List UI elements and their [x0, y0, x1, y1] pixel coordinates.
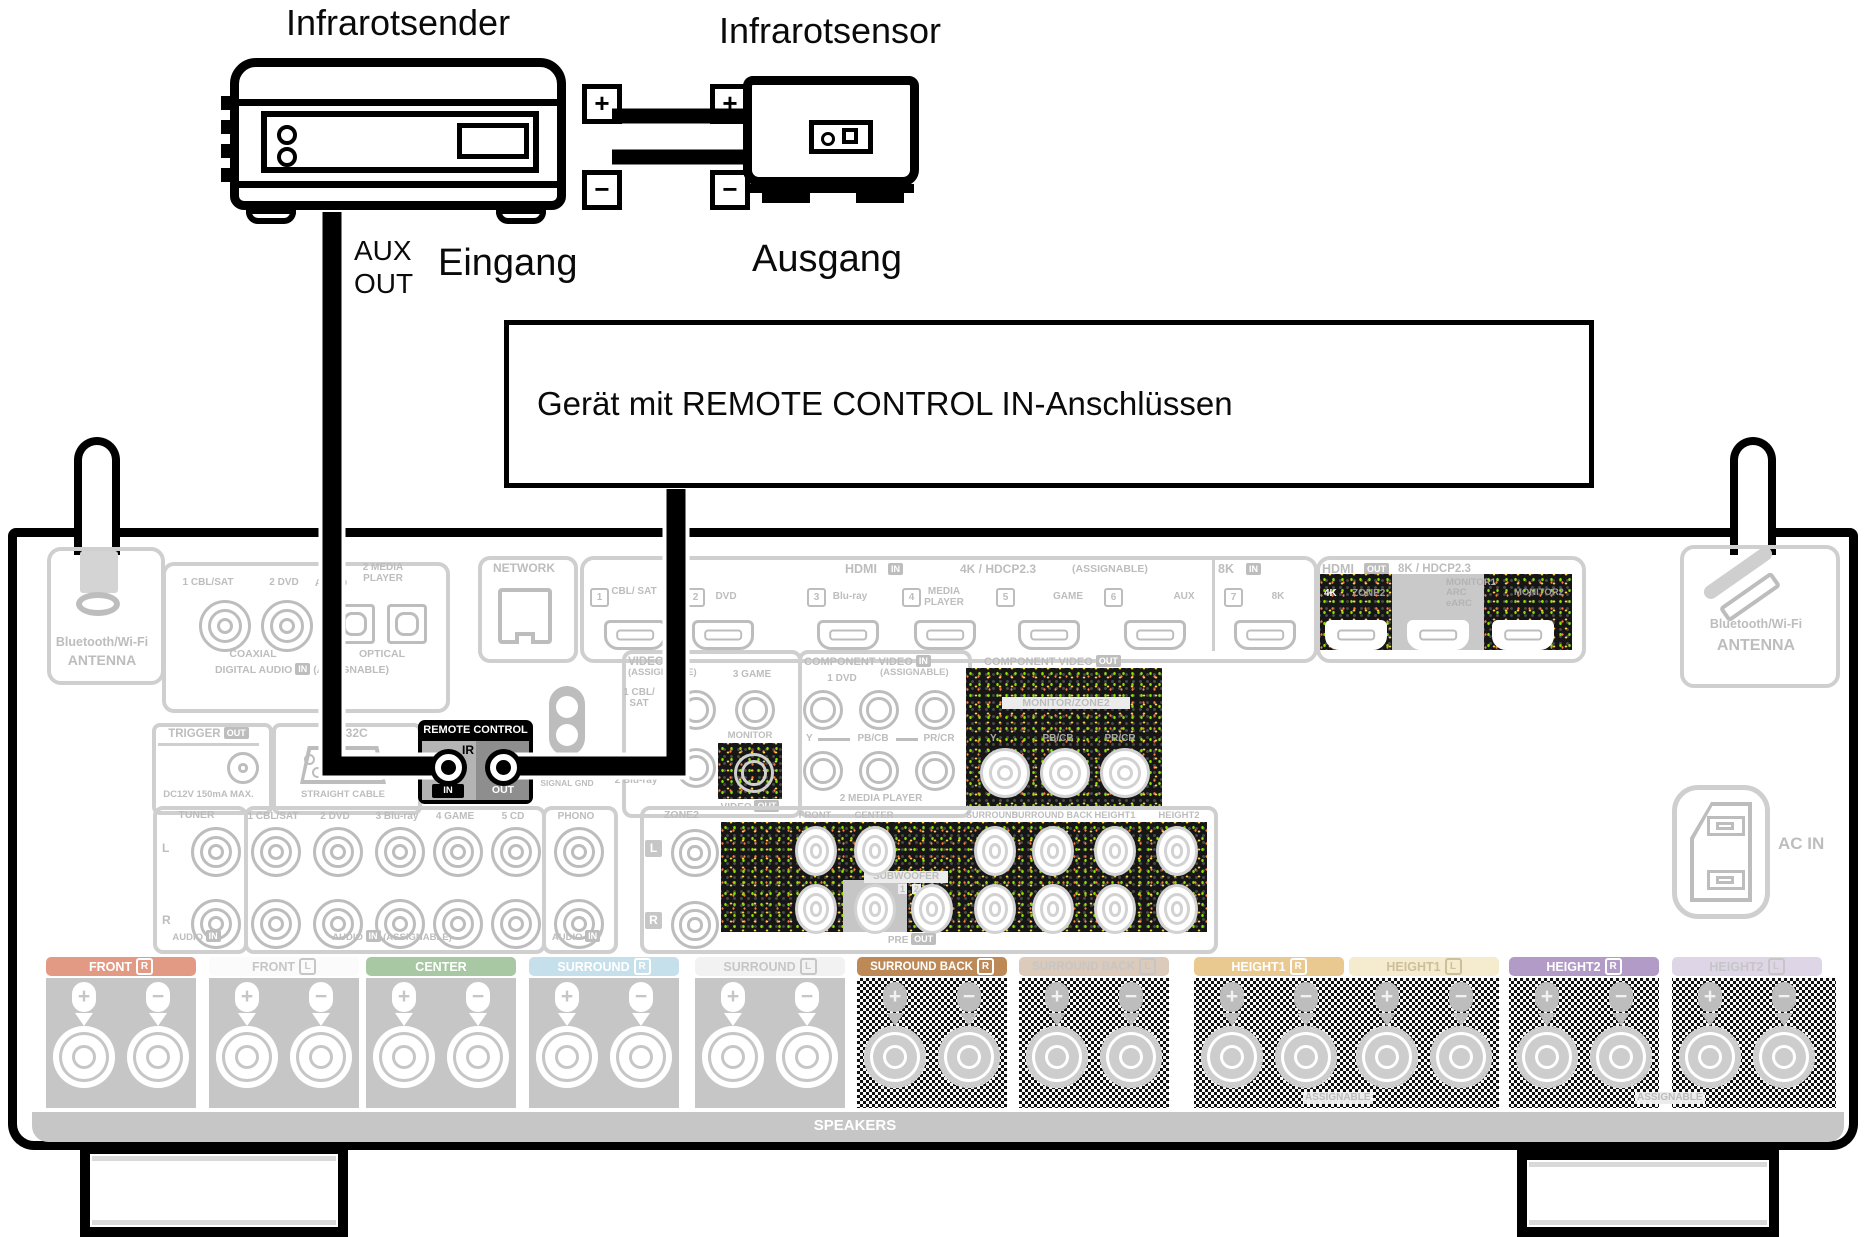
audio-jack-l [491, 827, 541, 877]
phono-jack-l [554, 827, 604, 877]
preout-surroundback-label: SURROUND BACK [1012, 811, 1092, 821]
component-rule [818, 738, 850, 741]
sensor-window [842, 128, 858, 144]
hdmi-connector-6 [1124, 620, 1186, 650]
hdmi-connector-7 [1234, 620, 1296, 650]
tab-label: CENTER [415, 960, 466, 974]
component-in-jack [915, 690, 955, 730]
hdmi-out-monitor1-label: MONITOR1 ARC eARC [1446, 578, 1496, 609]
tab-label: HEIGHT2 [1709, 960, 1763, 974]
wifi-antenna-right [1730, 437, 1776, 555]
phono-bar: AUDIO IN [538, 930, 614, 943]
component-in-assignable: (ASSIGNABLE) [880, 668, 949, 678]
audio-in-bar: AUDIO IN (ASSIGNABLE) [282, 930, 502, 943]
coaxial-jack-cblsat [199, 600, 251, 652]
signal-gnd-label: SIGNAL GND [517, 779, 617, 788]
remote-control-header: REMOTE CONTROL [418, 724, 533, 736]
binding-post-minus: − [775, 982, 839, 1108]
audio-jack-l [433, 827, 483, 877]
preout-front-label: FRONT [792, 811, 838, 821]
binding-post-minus: − [609, 982, 673, 1108]
speakers-bar: SPEAKERS [32, 1112, 1844, 1142]
sensor-eye-panel [809, 120, 873, 154]
assignable-chip: ASSIGNABLE [1635, 1092, 1705, 1104]
component-in-jack [915, 751, 955, 791]
tuner-r-label: R [162, 914, 171, 927]
foot-line [1529, 1162, 1767, 1167]
audio-jack-label: 4 GAME [423, 811, 487, 822]
digital-jack-label: 1 CBL/SAT [176, 577, 240, 588]
db9-pins-row1 [300, 754, 386, 765]
hdmi-connector-4 [914, 620, 976, 650]
sender-front-panel [261, 111, 539, 173]
digital-jack-label: 2 DVD [260, 577, 308, 588]
preout-jack-height1 [1094, 826, 1136, 876]
component-rule [896, 738, 918, 741]
hdmi-port-number: 2 [686, 588, 705, 607]
ac-pin-slot [1716, 876, 1734, 884]
component-out-y-label: Y [990, 733, 997, 744]
ethernet-notch [515, 632, 535, 644]
tab-label: HEIGHT1 [1386, 960, 1440, 974]
binding-post-plus: + [863, 982, 927, 1108]
zone2-jack-l [671, 829, 719, 877]
eingang-label: Eingang [438, 242, 577, 285]
block-gap [1659, 978, 1672, 1108]
speaker-tab-height1-l: HEIGHT1L [1349, 957, 1499, 976]
component-in-jack [859, 690, 899, 730]
audio-jack-l [251, 827, 301, 877]
sender-minus-terminal: − [582, 170, 622, 210]
tab-badge: R [1290, 958, 1307, 975]
speaker-tab-surroundback-r: SURROUND BACKR [857, 957, 1007, 976]
block-gap [1169, 978, 1194, 1108]
tab-label: SURROUND BACK [870, 961, 973, 973]
binding-post-minus: − [1752, 982, 1816, 1108]
ground-symbol [552, 760, 582, 775]
hdmi-port-number: 5 [996, 588, 1015, 607]
binding-post-minus: − [1589, 982, 1653, 1108]
hdmi-in-badge: IN [888, 563, 903, 576]
remote-control-in-device-box: Gerät mit REMOTE CONTROL IN-Anschlüssen [504, 320, 1594, 488]
foot-line [92, 1156, 336, 1161]
trigger-jack [227, 752, 259, 784]
receiver-foot-right [1517, 1150, 1779, 1237]
ac-pin-bottom [1707, 870, 1745, 890]
tab-badge: L [800, 958, 817, 975]
zone2-jack-r [671, 901, 719, 949]
tab-label: FRONT [252, 960, 295, 974]
video-jack-label: 1 CBL/ SAT [616, 688, 662, 710]
audio-jack-l [313, 827, 363, 877]
gnd-ring [556, 724, 578, 746]
foot-line [1529, 1220, 1767, 1225]
preout-jack-surround-b [974, 884, 1016, 934]
in-badge: IN [916, 655, 931, 667]
ac-pin-slot [1716, 822, 1734, 830]
out-badge: OUT [224, 727, 249, 739]
component-in-jack [859, 751, 899, 791]
bt-left-line1: Bluetooth/Wi-Fi [49, 636, 155, 650]
tab-badge: L [1445, 958, 1462, 975]
hdmi-in-assignable: (ASSIGNABLE) [1072, 564, 1148, 576]
binding-post-minus: − [937, 982, 1001, 1108]
coaxial-jack-dvd [261, 600, 313, 652]
hdmi-port-number: 4 [902, 588, 921, 607]
db9-pins-row2 [300, 767, 386, 778]
speaker-tab-surround-l: SURROUNDL [695, 957, 845, 976]
component-in-jack [803, 751, 843, 791]
digital-audio-bar: DIGITAL AUDIO IN (ASSIGNABLE) [168, 663, 436, 677]
tab-badge: R [136, 958, 153, 975]
binding-post-plus: + [535, 982, 599, 1108]
optical-jack-mediaplayer [387, 604, 427, 644]
sender-vent [221, 144, 231, 158]
tab-label: SURROUND [557, 960, 629, 974]
binding-post-plus: + [1355, 982, 1419, 1108]
binding-post-minus: − [446, 982, 510, 1108]
hdmi-port-label: MEDIA PLAYER [920, 587, 968, 609]
hdmi-in-title: HDMI [845, 563, 877, 577]
component-out-zone-label: MONITOR/ZONE2 [1002, 697, 1130, 709]
preout-height1-label: HEIGHT1 [1090, 811, 1140, 821]
speaker-tab-height1-r: HEIGHT1R [1194, 957, 1344, 976]
sender-vent [221, 120, 231, 134]
tab-badge: L [1768, 958, 1785, 975]
ac-pin-top [1707, 816, 1745, 836]
tuner-l-label: L [162, 842, 169, 855]
bt-right-line2: ANTENNA [1682, 637, 1830, 655]
bt-left-line2: ANTENNA [49, 653, 155, 668]
video-in-jack-cblsat [676, 690, 716, 730]
hdmi-connector-3 [817, 620, 879, 650]
aux-line2: OUT [354, 267, 413, 300]
sender-led-2 [277, 147, 297, 167]
gnd-ring [556, 696, 578, 718]
preout-center-label: CENTER [848, 811, 900, 821]
binding-post-plus: + [52, 982, 116, 1108]
wifi-antenna-left [74, 437, 120, 555]
hdmi-out-connector-4k [1325, 620, 1387, 650]
speaker-tab-front-l: FRONTL [209, 957, 359, 976]
zone2-label: ZONE2 [664, 810, 699, 822]
ethernet-port [498, 588, 552, 644]
digital-jack-label: 2 MEDIA PLAYER [358, 563, 408, 585]
optical-label: OPTICAL [344, 649, 420, 661]
binding-post-plus: + [1515, 982, 1579, 1108]
preout-jack-surroundback [1032, 826, 1074, 876]
speaker-tab-surroundback-l: SURROUND BACKL [1019, 957, 1169, 976]
in-badge: IN [888, 563, 903, 575]
rs232c-header: RS-232C [276, 727, 410, 740]
assignable-chip: ASSIGNABLE [1303, 1092, 1373, 1104]
out-badge: OUT [911, 933, 936, 945]
in-badge: IN [366, 930, 381, 942]
preout-jack-sub1 [854, 884, 896, 934]
sender-foot [496, 208, 546, 224]
binding-post-plus: + [701, 982, 765, 1108]
hdmi-port-label: 8K [1256, 591, 1300, 602]
preout-jack-sub2 [911, 884, 953, 934]
tab-badge: R [1605, 958, 1622, 975]
optical-jack-tvaudio [335, 604, 375, 644]
remote-ir-out-jack [485, 749, 522, 786]
tab-label: SURROUND BACK [1032, 961, 1135, 973]
binding-post-minus: − [1429, 982, 1493, 1108]
binding-post-plus: + [1678, 982, 1742, 1108]
hdmi-port-label: AUX [1158, 591, 1210, 602]
digital-audio-title: DIGITAL AUDIO [215, 664, 292, 676]
tab-label: SURROUND [723, 960, 795, 974]
preout-jack-surroundback-b [1032, 884, 1074, 934]
block-gap [1499, 978, 1509, 1108]
binding-post-plus: + [372, 982, 436, 1108]
remote-ir-label: IR [462, 743, 474, 757]
sender-foot [246, 208, 296, 224]
hdmi-port-label: Blu-ray [826, 591, 874, 602]
out-badge: OUT [1096, 655, 1121, 667]
in-badge: IN [1246, 563, 1261, 575]
in-badge: IN [206, 930, 221, 942]
sender-plus-terminal: + [582, 84, 622, 124]
sender-led-1 [277, 125, 297, 145]
tuner-bar: AUDIO IN [157, 930, 236, 943]
hdmi-port-label: CBL/ SAT [610, 587, 658, 598]
antenna-ring-left [76, 592, 120, 616]
in-badge: IN [667, 655, 682, 667]
trigger-out-header: TRIGGER OUT [158, 727, 259, 746]
rs232c-connector [300, 746, 386, 784]
sensor-foot [856, 193, 904, 203]
tab-label: HEIGHT2 [1546, 960, 1600, 974]
trigger-note: DC12V 150mA MAX. [154, 790, 263, 800]
earc-line: eARC [1446, 599, 1496, 609]
remote-in-badge: IN [432, 784, 464, 798]
tuner-label: TUNER [157, 810, 236, 822]
hdmi-connector-2 [692, 620, 754, 650]
ac-in-label: AC IN [1778, 835, 1824, 854]
tab-badge: L [1139, 958, 1156, 975]
sender-vent [221, 168, 231, 182]
video-in-assignable: (ASSIGNABLE) [628, 668, 697, 678]
video-jack-label: 3 GAME [722, 669, 782, 680]
signal-gnd-screw [549, 686, 585, 756]
audio-jack-l [375, 827, 425, 877]
foot-line [92, 1220, 336, 1225]
hdmi-connector-1 [604, 620, 666, 650]
audio-jack-label: 5 CD [481, 811, 545, 822]
ausgang-label: Ausgang [752, 238, 902, 281]
speaker-tab-center: CENTER [366, 957, 516, 976]
ir-sender-label: Infrarotsender [230, 2, 566, 44]
component-in-jack [803, 690, 843, 730]
preout-jack-height2 [1156, 826, 1198, 876]
device-box-label: Gerät mit REMOTE CONTROL IN-Anschlüssen [509, 385, 1233, 423]
component-y-label: Y [806, 733, 813, 744]
audio-label: AUDIO [552, 932, 583, 943]
hdmi-out-connector-monitor2 [1492, 620, 1554, 650]
bt-right-line1: Bluetooth/Wi-Fi [1682, 618, 1830, 632]
hdmi-connector-5 [1018, 620, 1080, 650]
hdmi-out-connector-monitor1 [1407, 620, 1469, 650]
ir-sender-device [230, 58, 566, 210]
component-out-jack [1040, 748, 1090, 798]
speaker-tab-front-r: FRONTR [46, 957, 196, 976]
binding-post-minus: − [126, 982, 190, 1108]
hdmi-out-monitor2-label: MONITOR2 [1514, 588, 1564, 598]
video-out-monitor-label: MONITOR [718, 731, 782, 741]
aux-out-label: AUX OUT [354, 234, 413, 300]
antenna-shaft-left [80, 551, 118, 593]
hdmi-8k-title: 8K [1218, 563, 1234, 577]
video-in-jack-game [735, 690, 775, 730]
assignable-note: (ASSIGNABLE) [383, 932, 452, 943]
tab-badge: R [977, 958, 994, 975]
sensor-base-bar [748, 184, 914, 193]
hdmi-in-spec: 4K / HDCP2.3 [960, 563, 1036, 576]
audio-jack-label: 2 DVD [303, 811, 367, 822]
preout-jack-surround [974, 826, 1016, 876]
component-pb-label: PB/CB [852, 733, 894, 744]
component-dvd-label: 1 DVD [812, 673, 872, 684]
binding-post-minus: − [1099, 982, 1163, 1108]
hdmi-port-label: GAME [1040, 591, 1096, 602]
speakers-label: SPEAKERS [780, 1117, 930, 1134]
audio-label: AUDIO [332, 932, 363, 943]
tab-label: FRONT [89, 960, 132, 974]
assignable-note: (ASSIGNABLE) [313, 664, 389, 676]
hdmi-port-number: 7 [1224, 588, 1243, 607]
rs232c-note: STRAIGHT CABLE [276, 790, 410, 800]
hdmi-port-number: 1 [590, 588, 609, 607]
speaker-tab-height2-r: HEIGHT2R [1509, 957, 1659, 976]
zone2-l-chip: L [645, 840, 662, 857]
preout-jack-front-b [795, 884, 837, 934]
sender-vent [221, 96, 231, 110]
video-in-jack-bluray [676, 748, 716, 788]
network-label: NETWORK [480, 562, 568, 575]
preout-jack-height1-b [1094, 884, 1136, 934]
remote-ir-in-jack [430, 749, 467, 786]
zone2-r-chip: R [645, 912, 662, 929]
phono-label: PHONO [544, 811, 608, 822]
hdmi-out-4k-label: 4K [1324, 588, 1337, 599]
connection-diagram: Infrarotsender Infrarotsensor + − + − AU… [0, 0, 1866, 1237]
hdmi-8k-divider [1212, 560, 1215, 651]
sender-display [457, 123, 529, 159]
coaxial-label: COAXIAL [215, 649, 291, 661]
subwoofer-1-chip: 1 [898, 884, 907, 894]
block-gap [1007, 978, 1019, 1108]
preout-height2-label: HEIGHT2 [1154, 811, 1204, 821]
in-badge: IN [585, 930, 600, 942]
speaker-tab-height2-l: HEIGHT2L [1672, 957, 1822, 976]
hdmi-out-zone2-label: ZONE2 [1352, 588, 1385, 599]
component-out-pb-label: PB/CB [1036, 733, 1080, 744]
binding-post-plus: + [1025, 982, 1089, 1108]
binding-post-plus: + [215, 982, 279, 1108]
sender-top-line [239, 99, 557, 106]
in-badge: IN [295, 663, 310, 675]
component-out-header: COMPONENT VIDEO OUT [984, 655, 1121, 668]
hdmi-8k-badge: IN [1246, 563, 1261, 576]
speaker-tab-surround-r: SURROUNDR [529, 957, 679, 976]
preout-jack-height2-b [1156, 884, 1198, 934]
tab-badge: R [634, 958, 651, 975]
ir-sensor-device [743, 76, 919, 186]
sender-bottom-line [239, 181, 557, 188]
component-out-jack [980, 748, 1030, 798]
hdmi-port-number: 3 [807, 588, 826, 607]
hdmi-port-label: DVD [706, 591, 746, 602]
receiver-foot-left [80, 1144, 348, 1237]
tab-label: HEIGHT1 [1231, 960, 1285, 974]
ir-sensor-label: Infrarotsensor [690, 10, 970, 52]
pre-out-bar: PRE OUT [872, 933, 952, 946]
audio-jack-label: 1 CBL/SAT [241, 811, 305, 822]
binding-post-minus: − [1274, 982, 1338, 1108]
preout-jack-front [795, 826, 837, 876]
audio-jack-label: 3 Blu-ray [365, 811, 429, 822]
aux-line1: AUX [354, 234, 413, 267]
tuner-jack-l [191, 827, 241, 877]
component-pr-label: PR/CR [918, 733, 960, 744]
binding-post-minus: − [289, 982, 353, 1108]
component-media-label: 2 MEDIA PLAYER [806, 793, 956, 804]
component-out-pr-label: PR/CR [1098, 733, 1142, 744]
audio-label: AUDIO [172, 932, 203, 943]
binding-post-plus: + [1200, 982, 1264, 1108]
digital-jack-label: 1 TV AUDIO [310, 568, 352, 590]
preout-jack-center [854, 826, 896, 876]
component-out-jack [1100, 748, 1150, 798]
pre-label: PRE [888, 935, 909, 946]
ac-inlet [1672, 785, 1770, 919]
hdmi-port-number: 6 [1104, 588, 1123, 607]
video-out-monitor-jack [734, 753, 774, 793]
video-jack-label: 2 Blu-ray [606, 776, 666, 787]
sensor-foot [762, 193, 810, 203]
tab-badge: L [299, 958, 316, 975]
component-video-title: COMPONENT VIDEO [984, 656, 1093, 668]
trigger-title: TRIGGER [168, 728, 220, 740]
sensor-led [821, 132, 835, 146]
